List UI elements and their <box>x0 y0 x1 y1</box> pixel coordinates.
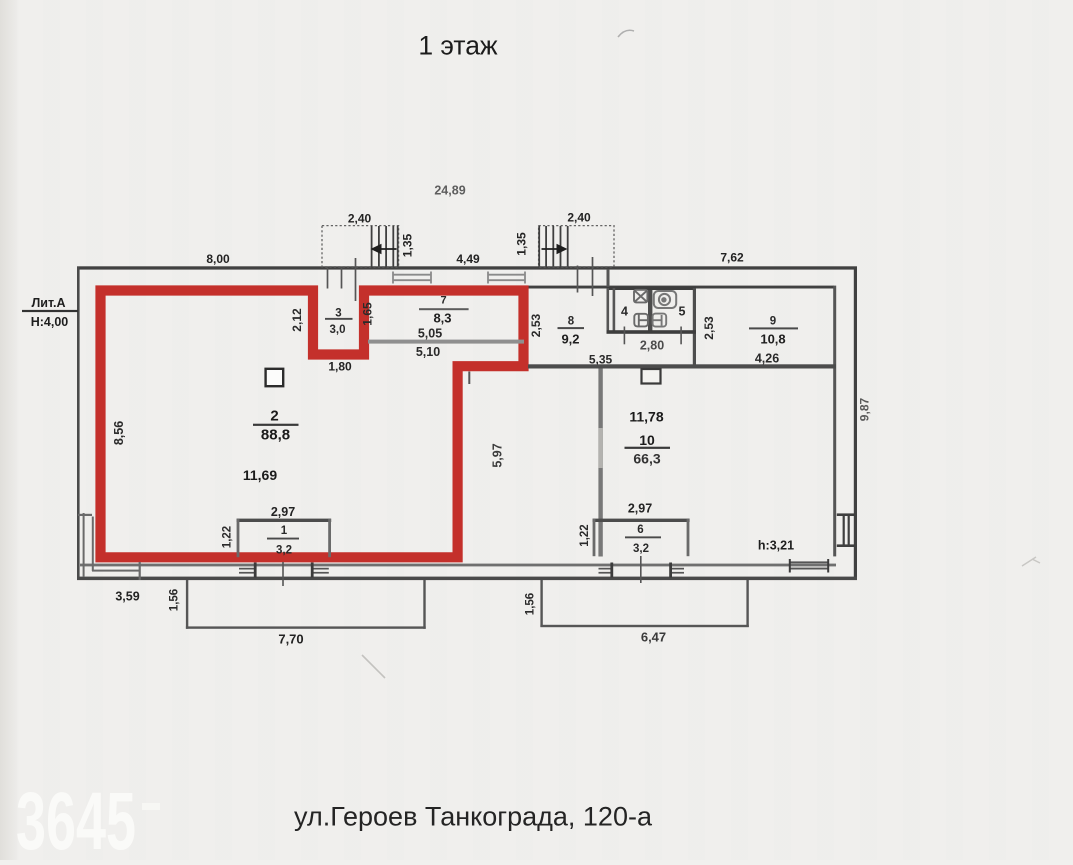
svg-text:1,80: 1,80 <box>328 360 352 374</box>
svg-text:1 этаж: 1 этаж <box>418 31 498 61</box>
svg-text:7: 7 <box>440 295 446 307</box>
svg-text:3: 3 <box>335 308 341 320</box>
svg-text:1: 1 <box>281 525 288 537</box>
svg-text:2,53: 2,53 <box>529 313 543 337</box>
svg-text:2,40: 2,40 <box>348 212 372 226</box>
svg-text:4,49: 4,49 <box>456 252 480 266</box>
svg-text:2,97: 2,97 <box>271 505 295 519</box>
svg-text:88,8: 88,8 <box>261 427 290 444</box>
svg-text:3645: 3645 <box>16 776 136 860</box>
svg-text:9: 9 <box>770 316 776 328</box>
svg-text:24,89: 24,89 <box>434 184 465 198</box>
svg-text:5,05: 5,05 <box>418 327 442 341</box>
svg-text:8,00: 8,00 <box>206 252 230 266</box>
svg-text:Лит.А: Лит.А <box>32 296 66 310</box>
svg-text:9,87: 9,87 <box>858 397 872 421</box>
svg-text:1,56: 1,56 <box>169 589 181 611</box>
svg-text:3,2: 3,2 <box>276 545 292 557</box>
svg-text:1,22: 1,22 <box>222 526 234 548</box>
svg-text:1,56: 1,56 <box>525 593 537 615</box>
svg-text:6: 6 <box>637 524 643 536</box>
svg-text:2,40: 2,40 <box>567 211 591 225</box>
svg-text:9,2: 9,2 <box>561 332 579 347</box>
svg-text:2,53: 2,53 <box>702 316 716 340</box>
svg-text:4,26: 4,26 <box>755 352 779 366</box>
svg-text:3,59: 3,59 <box>115 590 139 604</box>
svg-text:5,97: 5,97 <box>491 443 505 467</box>
svg-text:6,47: 6,47 <box>641 630 666 645</box>
svg-text:2,97: 2,97 <box>628 502 652 516</box>
svg-text:1,35: 1,35 <box>401 233 415 257</box>
svg-text:11,69: 11,69 <box>243 467 277 483</box>
svg-text:10,8: 10,8 <box>760 332 785 347</box>
svg-text:8: 8 <box>568 316 575 328</box>
svg-text:8,3: 8,3 <box>433 311 451 326</box>
svg-text:Н:4,00: Н:4,00 <box>31 315 69 329</box>
svg-text:10: 10 <box>639 432 655 448</box>
svg-text:2,12: 2,12 <box>290 308 304 332</box>
svg-text:1,35: 1,35 <box>515 232 529 256</box>
svg-text:5,10: 5,10 <box>416 345 440 359</box>
svg-text:8,56: 8,56 <box>112 421 126 445</box>
svg-text:5: 5 <box>679 305 686 319</box>
svg-text:1,22: 1,22 <box>579 524 591 546</box>
svg-text:7,70: 7,70 <box>278 632 303 647</box>
svg-text:7,62: 7,62 <box>720 251 744 265</box>
svg-text:2,80: 2,80 <box>640 339 664 353</box>
svg-text:11,78: 11,78 <box>629 409 663 425</box>
svg-text:1,65: 1,65 <box>361 302 375 326</box>
svg-text:3,2: 3,2 <box>633 543 649 555</box>
svg-text:3,0: 3,0 <box>330 324 346 336</box>
svg-text:h:3,21: h:3,21 <box>758 539 794 553</box>
svg-text:66,3: 66,3 <box>633 451 660 467</box>
svg-text:ул.Героев Танкограда, 120-а: ул.Героев Танкограда, 120-а <box>294 802 653 832</box>
svg-text:2: 2 <box>270 408 278 425</box>
svg-text:4: 4 <box>621 305 628 319</box>
